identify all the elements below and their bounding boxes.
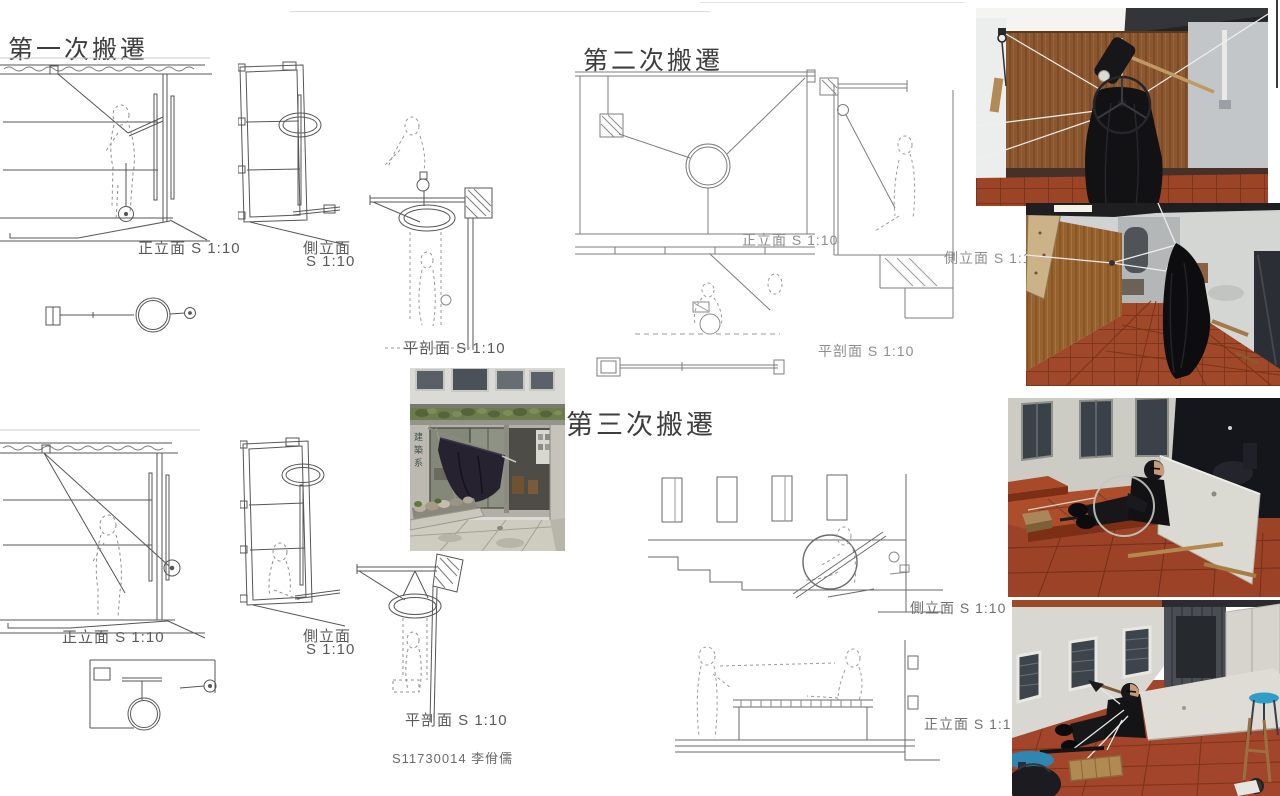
drawing-second-plan [592,352,797,386]
photo-storefront-fabric-hammock: 建築系 [410,368,565,551]
scan-edge-mark [1276,0,1278,88]
drawing-first-plan [38,293,213,343]
drawing-firstb-plan [82,648,222,738]
drawing-second-front-elevation [575,62,820,337]
scan-artifact-line [700,2,965,3]
label-first-front-elevation: 正立面 S 1:10 [138,237,241,258]
storefront-sign-text: 建築系 [413,432,422,471]
label-third-side-elevation: 側立面 S 1:10 [910,598,1006,618]
drawing-first-side-elevation [238,55,348,255]
drawing-third-front-elevation [675,640,945,765]
section-title-third: 第三次搬遷 [566,403,716,442]
drawing-firstb-front-elevation [0,425,232,640]
poster-canvas: 第一次搬遷 第二次搬遷 第三次搬遷 [0,0,1280,796]
label-first-plan: 平剖面 S 1:10 [403,337,506,358]
label-firstb-plan: 平剖面 S 1:10 [405,709,508,730]
label-second-plan: 平剖面 S 1:10 [818,341,914,361]
drawing-firstb-bracket-view [345,552,475,730]
photo-fabric-corridor-tiles [1026,203,1280,386]
drawing-firstb-side-elevation [240,430,350,640]
label-firstb-front-elevation: 正立面 S 1:10 [62,626,165,647]
drawing-first-bracket-view [340,110,565,355]
photo-person-hoop-brick-steps [1008,398,1280,597]
drawing-first-front-elevation [0,55,235,255]
photo-person-sled-courtyard [1012,600,1280,796]
scan-artifact-line [290,11,710,12]
signature-student-id-name: S11730014 李佾儒 [392,748,513,767]
photo-fabric-ring-wood-wall [976,8,1268,206]
label-second-front-elevation: 正立面 S 1:10 [742,230,838,250]
drawing-third-side-elevation [648,462,948,622]
label-firstb-side-elevation-line2: S 1:10 [306,641,355,658]
label-third-front-elevation: 正立面 S 1:10 [924,714,1020,734]
drawing-second-side-elevation [815,68,965,323]
label-first-side-elevation-line2: S 1:10 [306,253,355,270]
